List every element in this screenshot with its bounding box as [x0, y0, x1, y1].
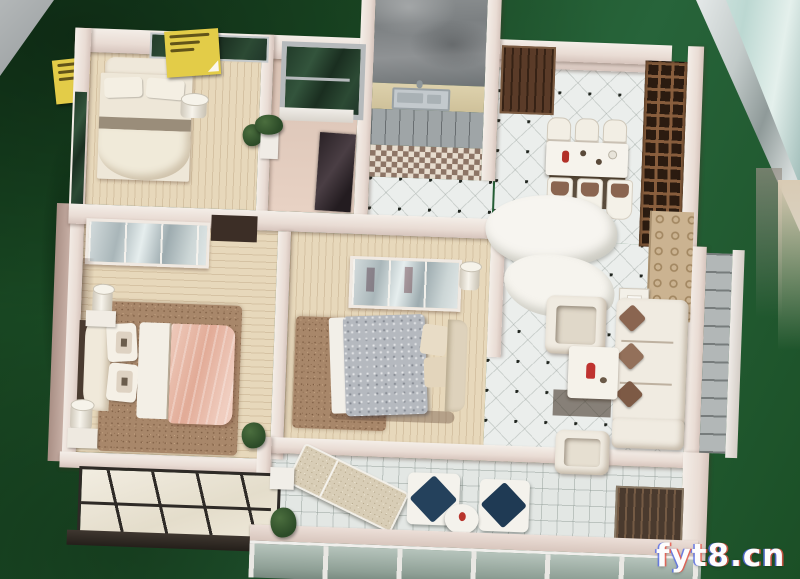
apartment-model: [0, 0, 800, 579]
bed1-pillow: [145, 77, 185, 100]
pillow-patch: [121, 338, 127, 346]
wardrobe-reflection: [366, 267, 375, 291]
watermark: fyt8.cn: [656, 538, 785, 574]
bedroom2-lamp-top: [460, 261, 482, 273]
hall-plant: [255, 114, 284, 135]
coffee-table: [567, 346, 619, 400]
balcony-chair: [478, 479, 530, 533]
table-dish: [608, 150, 617, 159]
hall-mirror: [315, 132, 356, 212]
table-dish: [580, 150, 586, 156]
table-item: [600, 377, 607, 383]
table-red-bottle: [562, 151, 569, 163]
master-wardrobe: [85, 218, 211, 269]
living-armchair-bottom: [554, 429, 610, 475]
living-sofa-chaise: [611, 418, 684, 451]
bed1-pillow: [104, 77, 143, 98]
master-nightstand: [67, 428, 98, 449]
master-plant: [241, 422, 266, 449]
sofa-pillow: [617, 342, 645, 370]
armchair-cushion: [555, 305, 596, 344]
bed2-headboard: [445, 319, 468, 412]
master-duvet: [168, 323, 236, 425]
master-nightstand: [86, 310, 117, 327]
balcony-side-table: [270, 467, 295, 490]
table-dish: [596, 159, 602, 165]
master-accent-pillow: [116, 370, 133, 393]
master-doorway: [211, 215, 258, 243]
photo-scene: fyt8.cn: [0, 0, 800, 579]
note-text-line: [169, 33, 209, 39]
bed2-pillow: [419, 323, 449, 356]
wardrobe-reflection: [404, 267, 413, 293]
bed2-duvet: [343, 314, 428, 417]
kitchen-cabinets: [370, 109, 483, 149]
pillow-patch: [121, 378, 127, 386]
dining-table: [545, 141, 628, 178]
window-sticky-note: [164, 28, 221, 78]
armchair-cushion: [564, 438, 601, 467]
red-figurine: [586, 363, 596, 379]
note-text-line: [170, 40, 200, 45]
dining-chair: [606, 179, 633, 220]
note-text-line: [170, 48, 194, 53]
sofa-pillow: [618, 304, 646, 332]
table-red-item: [459, 512, 466, 521]
master-duvet-band: [136, 322, 171, 419]
lounge-back-line: [319, 460, 338, 497]
note-folded-corner: [207, 60, 219, 72]
bedroom2-wardrobe: [348, 256, 462, 312]
master-accent-pillow: [116, 331, 133, 354]
chair-cushion: [480, 482, 527, 529]
sink-basin: [427, 95, 441, 105]
master-lamp-top: [93, 283, 115, 295]
sink-basin: [397, 92, 423, 103]
kitchen-sink: [392, 87, 451, 111]
bay-window-rail: [81, 501, 271, 511]
kitchen-tile-floor: [369, 144, 482, 180]
window-mullion: [286, 76, 350, 81]
living-sofa: [612, 298, 689, 429]
dining-door-panel: [500, 45, 556, 115]
kitchen-wall: [373, 0, 489, 87]
bathroom-sill: [279, 107, 353, 123]
kitchen-faucet: [416, 80, 422, 88]
